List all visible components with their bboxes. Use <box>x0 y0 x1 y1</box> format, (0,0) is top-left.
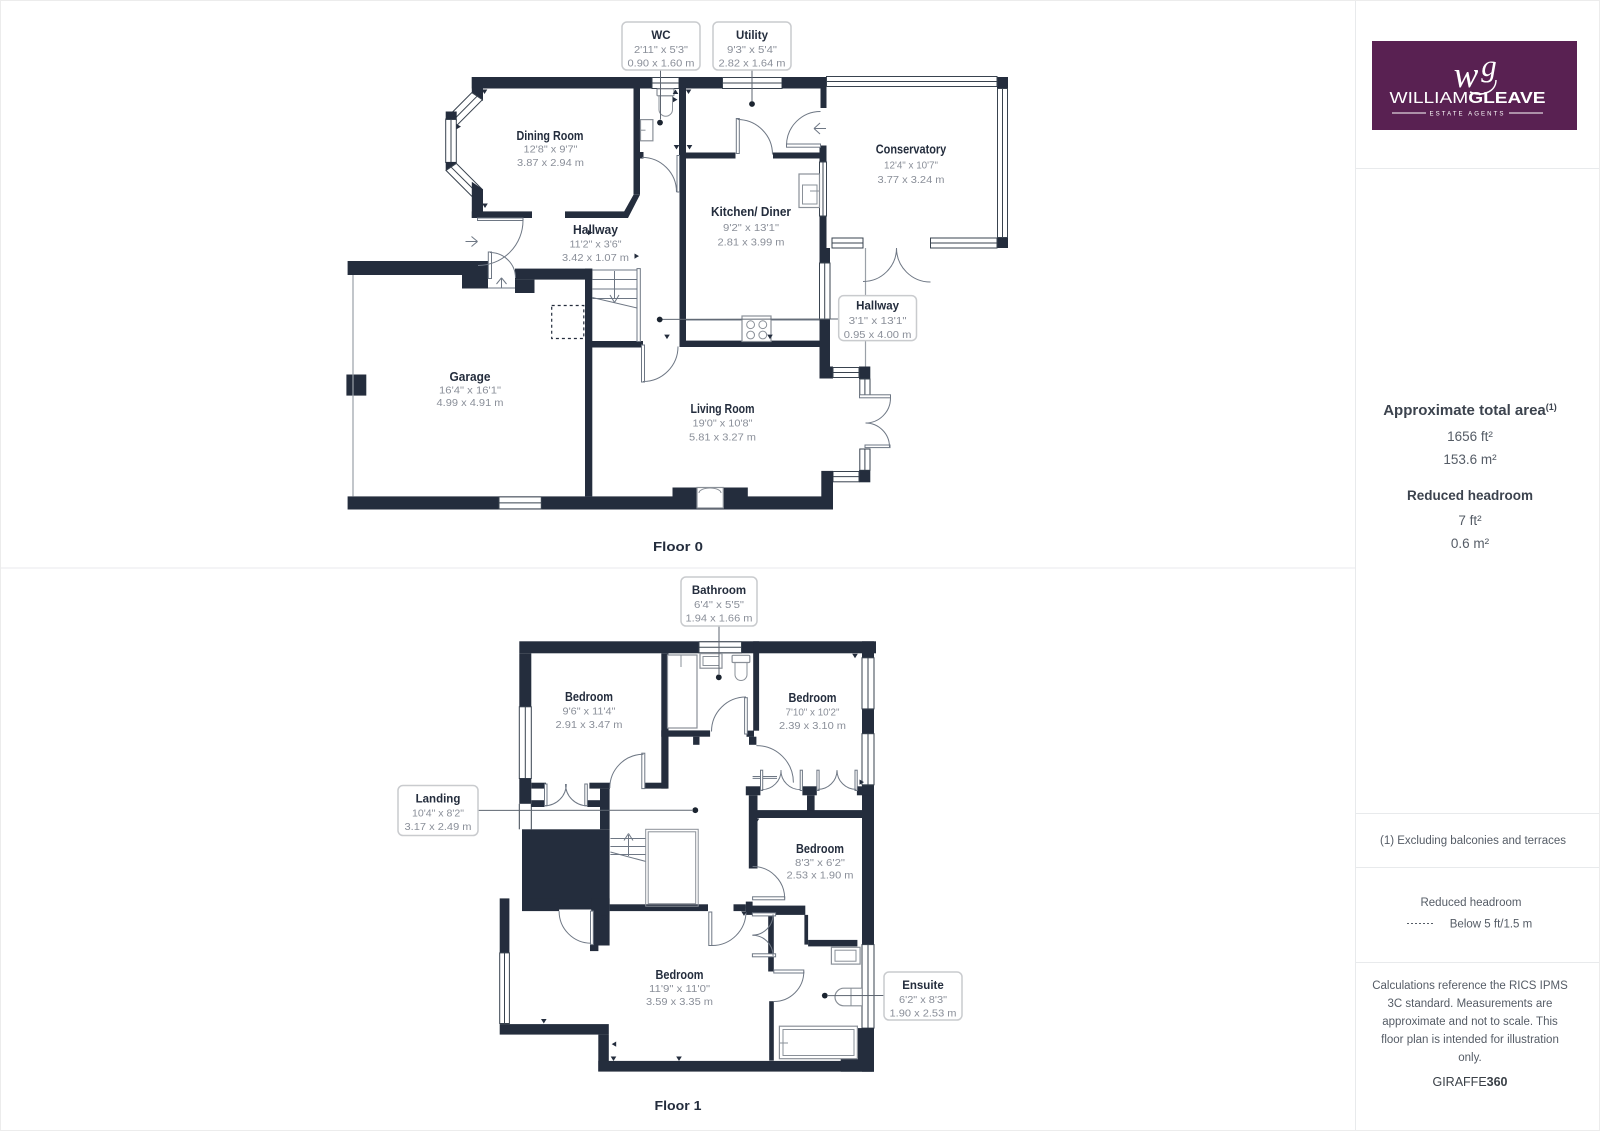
svg-text:16'4" x 16'1": 16'4" x 16'1" <box>439 386 502 397</box>
svg-text:Bedroom: Bedroom <box>796 841 844 856</box>
svg-text:Living Room: Living Room <box>691 401 755 416</box>
svg-text:Reduced headroom: Reduced headroom <box>1420 897 1521 909</box>
svg-text:2.91 x 3.47 m: 2.91 x 3.47 m <box>556 720 623 731</box>
svg-text:g: g <box>1481 48 1497 83</box>
svg-text:9'6" x 11'4": 9'6" x 11'4" <box>563 707 616 718</box>
svg-text:0.90 x 1.60 m: 0.90 x 1.60 m <box>628 59 695 70</box>
svg-text:0.6 m²: 0.6 m² <box>1451 536 1490 551</box>
svg-text:11'2" x 3'6": 11'2" x 3'6" <box>570 240 622 251</box>
svg-text:(1) Excluding balconies and te: (1) Excluding balconies and terraces <box>1380 835 1566 847</box>
svg-text:2.53 x 1.90 m: 2.53 x 1.90 m <box>787 871 854 882</box>
svg-text:6'4" x 5'5": 6'4" x 5'5" <box>694 600 744 611</box>
svg-text:2.81 x 3.99 m: 2.81 x 3.99 m <box>718 238 785 249</box>
svg-text:GIRAFFE360: GIRAFFE360 <box>1432 1075 1507 1089</box>
svg-text:2.39 x 3.10 m: 2.39 x 3.10 m <box>779 721 846 732</box>
svg-text:only.: only. <box>1458 1052 1481 1064</box>
svg-text:1.94 x 1.66 m: 1.94 x 1.66 m <box>686 614 753 625</box>
svg-text:0.95 x 4.00 m: 0.95 x 4.00 m <box>844 330 912 341</box>
svg-text:9'2" x 13'1": 9'2" x 13'1" <box>723 223 779 234</box>
svg-text:ESTATE AGENTS: ESTATE AGENTS <box>1430 111 1506 118</box>
svg-text:Bathroom: Bathroom <box>692 585 746 597</box>
svg-text:WC: WC <box>651 30 670 42</box>
svg-text:2'11" x 5'3": 2'11" x 5'3" <box>634 45 688 56</box>
svg-text:WILLIAMGLEAVE: WILLIAMGLEAVE <box>1390 90 1546 107</box>
svg-text:11'9" x 11'0": 11'9" x 11'0" <box>649 984 711 995</box>
svg-text:Bedroom: Bedroom <box>565 689 613 704</box>
svg-text:3.59 x 3.35 m: 3.59 x 3.35 m <box>646 997 713 1008</box>
svg-text:6'2" x 8'3": 6'2" x 8'3" <box>899 995 947 1006</box>
svg-text:5.81 x 3.27 m: 5.81 x 3.27 m <box>689 432 756 443</box>
svg-text:153.6 m²: 153.6 m² <box>1443 452 1497 467</box>
svg-text:8'3" x 6'2": 8'3" x 6'2" <box>795 858 845 869</box>
svg-text:Below 5 ft/1.5 m: Below 5 ft/1.5 m <box>1450 919 1532 931</box>
svg-text:12'8" x 9'7": 12'8" x 9'7" <box>524 145 578 156</box>
svg-text:1.90 x 2.53 m: 1.90 x 2.53 m <box>890 1009 957 1020</box>
svg-text:2.82 x 1.64 m: 2.82 x 1.64 m <box>719 59 786 70</box>
svg-text:Calculations reference the RIC: Calculations reference the RICS IPMS <box>1372 980 1568 992</box>
svg-text:Kitchen/ Diner: Kitchen/ Diner <box>711 204 791 219</box>
svg-text:Reduced headroom: Reduced headroom <box>1407 488 1533 503</box>
svg-text:1656 ft²: 1656 ft² <box>1447 429 1493 444</box>
svg-text:floor plan is intended for ill: floor plan is intended for illustration <box>1381 1034 1559 1046</box>
svg-text:19'0" x 10'8": 19'0" x 10'8" <box>693 419 753 430</box>
svg-text:Dining Room: Dining Room <box>517 128 584 143</box>
svg-text:3C standard. Measurements are: 3C standard. Measurements are <box>1388 998 1553 1010</box>
svg-text:Garage: Garage <box>450 369 491 384</box>
svg-text:Conservatory: Conservatory <box>876 142 947 157</box>
svg-text:Hallway: Hallway <box>573 222 619 237</box>
svg-text:3.17 x 2.49 m: 3.17 x 2.49 m <box>405 822 472 833</box>
svg-text:Hallway: Hallway <box>856 301 899 313</box>
svg-text:7 ft²: 7 ft² <box>1458 513 1482 528</box>
svg-text:10'4" x 8'2": 10'4" x 8'2" <box>412 809 464 820</box>
svg-text:7'10" x 10'2": 7'10" x 10'2" <box>786 708 840 719</box>
svg-text:Bedroom: Bedroom <box>789 690 837 705</box>
svg-text:Bedroom: Bedroom <box>656 967 704 982</box>
svg-text:3'1" x 13'1": 3'1" x 13'1" <box>849 316 908 327</box>
svg-text:Approximate total area(1): Approximate total area(1) <box>1383 402 1557 419</box>
svg-text:12'4" x 10'7": 12'4" x 10'7" <box>884 161 938 172</box>
svg-text:Utility: Utility <box>736 30 769 42</box>
svg-text:Floor 0: Floor 0 <box>653 539 703 554</box>
svg-text:approximate and not to scale.: approximate and not to scale. This <box>1382 1016 1558 1028</box>
svg-text:4.99 x 4.91 m: 4.99 x 4.91 m <box>437 398 504 409</box>
svg-text:Floor 1: Floor 1 <box>655 1098 702 1113</box>
svg-text:9'3" x 5'4": 9'3" x 5'4" <box>727 45 777 56</box>
svg-text:3.87 x 2.94 m: 3.87 x 2.94 m <box>517 158 584 169</box>
svg-text:Landing: Landing <box>416 794 461 806</box>
svg-text:Ensuite: Ensuite <box>902 980 944 992</box>
svg-text:3.42 x 1.07 m: 3.42 x 1.07 m <box>562 253 629 264</box>
svg-text:3.77 x 3.24 m: 3.77 x 3.24 m <box>878 175 945 186</box>
